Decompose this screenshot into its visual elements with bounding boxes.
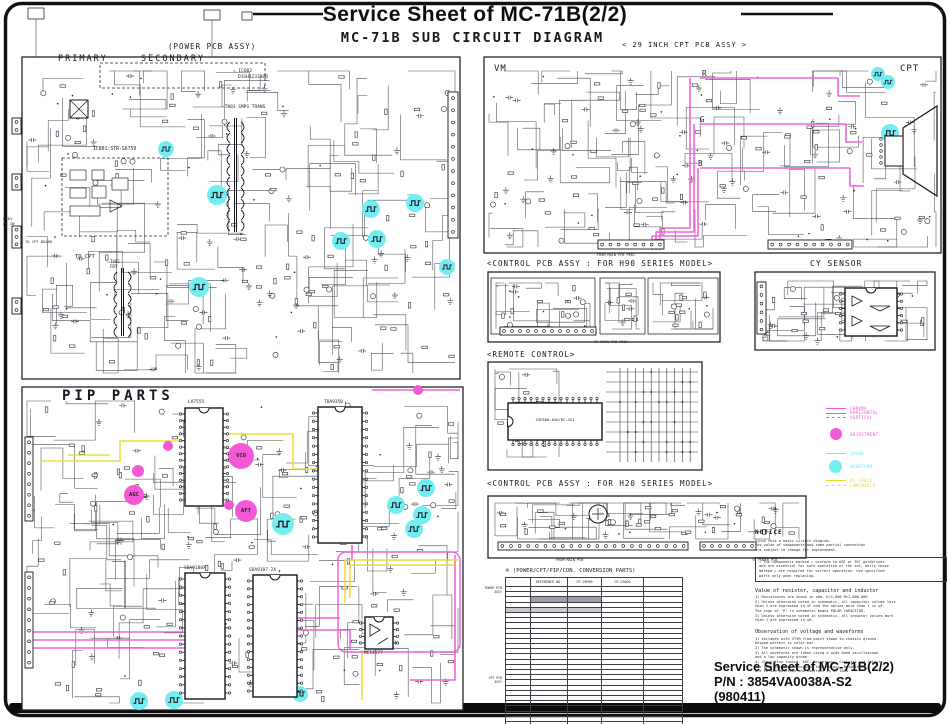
- vco-adjust-label: VCO: [232, 453, 250, 459]
- waveform-icon: [207, 185, 227, 205]
- ic802-label: ⚠ IC802: [233, 69, 252, 74]
- adjustment-icon: [413, 385, 423, 395]
- conv-col-0: [506, 578, 531, 587]
- waveform-icon: [417, 479, 435, 497]
- primary-label: PRIMARY: [58, 55, 108, 65]
- legend-line-vertical: [826, 417, 846, 418]
- connector: [598, 240, 664, 249]
- ic-chip: [247, 575, 302, 697]
- connector: [25, 437, 33, 521]
- notice-value-title: Value of resistor, capacitor and inducto…: [755, 588, 947, 595]
- mc14577-label: MC14577: [364, 651, 383, 656]
- channel-g-label: G: [700, 116, 706, 124]
- legend-adjustment-icon: [830, 428, 842, 440]
- legend-line-dc-cable: [826, 480, 846, 481]
- legend-line-chroma: [826, 408, 846, 409]
- tda9350-label: TDA9350: [324, 400, 343, 405]
- ic-chip: [359, 617, 398, 649]
- la7555-label: LA7555: [188, 400, 204, 405]
- sda9187-label: SDA9187-2X: [249, 568, 276, 573]
- vm-label: VM: [494, 64, 507, 74]
- footer-title: Service Sheet of MC-71B(2/2): [714, 659, 894, 674]
- connector: [12, 226, 21, 248]
- h90-to-main-label: TO MAIN PCB P601: [594, 341, 628, 345]
- connector: [498, 542, 688, 550]
- legend-label-vertical: VERTICAL: [850, 415, 873, 420]
- legend-line-horizontal: [826, 413, 846, 414]
- legend-waveform-icon: [829, 460, 842, 473]
- page-subtitle: MC-71B SUB CIRCUIT DIAGRAM: [300, 31, 645, 46]
- legend-label-adjustment: ADJUSTMENT: [850, 432, 878, 437]
- to-cpt-board-label: TO CPT BOARD: [25, 240, 52, 244]
- cy-sensor-label: CY SENSOR: [810, 260, 862, 269]
- legend-label-sound: SOUND: [850, 451, 864, 456]
- waveform-icon: [362, 200, 380, 218]
- waveform-icon: [881, 75, 895, 89]
- adjustment-icon: [132, 465, 144, 477]
- waveform-icon: [332, 232, 350, 250]
- waveform-icon: [368, 230, 386, 248]
- adjustment-icon: [224, 500, 234, 510]
- adjustment-icon: [163, 441, 173, 451]
- waveform-icon: [130, 692, 148, 710]
- notice-caution-box: ⚠ The components marked ⚠ conform to ASE…: [755, 557, 947, 582]
- waveform-icon: [405, 520, 423, 538]
- conversion-table: REFERENCE NO. CP-29H05 CP-29Q05: [505, 577, 683, 724]
- conv-group-power: POWER PCB ASSY: [481, 586, 502, 594]
- notice-block: NOTICE Since this a basic circuit diagra…: [755, 529, 947, 674]
- legend-label-waveform: WAVEFORM: [850, 464, 873, 469]
- footer-part-number: P/N : 3854VA0038A-S2: [714, 674, 852, 689]
- conversion-table-title: ※ (POWER/CPT/PIP/CON. CONVERSION PARTS): [505, 568, 635, 574]
- ic-chip: [179, 573, 230, 699]
- waveform-icon: [158, 141, 174, 157]
- connector: [12, 298, 21, 314]
- connector: [12, 174, 21, 190]
- fbt-label: FBT: [110, 265, 117, 269]
- connector: [25, 572, 33, 668]
- waveform-icon: [272, 513, 294, 535]
- legend-line-luminance: [826, 485, 846, 486]
- cpt-from-main-label: FROM MAIN PCB P601: [597, 254, 635, 258]
- sda9188x-label: SDA9188X: [184, 566, 206, 571]
- notice-intro-line: are subject to change for improvement.: [755, 548, 947, 553]
- h20-from-main-label: FROM MAIN PCB: [556, 559, 583, 563]
- page-title: Service Sheet of MC-71B(2/2): [0, 3, 950, 27]
- waveform-icon: [189, 277, 209, 297]
- cpt-label: CPT: [900, 64, 919, 74]
- t803-label: ⚠T803 SMPS TRANS: [222, 105, 265, 110]
- notice-obs-title: Observation of voltage and waveforms: [755, 629, 947, 636]
- ic-chip: [312, 407, 367, 543]
- conv-col-3: CP-29Q05: [601, 578, 643, 587]
- waveform-icon: [406, 194, 424, 212]
- connector: [12, 118, 21, 134]
- ic801-label: IC801:STR-S6759: [93, 147, 136, 152]
- h90-label: <CONTROL PCB ASSY : FOR H90 SERIES MODEL…: [487, 260, 713, 268]
- ac-in-label: AC IN: [3, 222, 14, 226]
- connector: [757, 282, 766, 334]
- notice-value-line: than 1 are expressed in uH.: [755, 618, 947, 623]
- pip-parts-label: PIP PARTS: [62, 389, 174, 405]
- channel-b-label: B: [698, 160, 704, 168]
- connector: [768, 240, 852, 249]
- remote-ic-label: S3F880-05A/RC-2S1: [512, 418, 598, 422]
- connector: [448, 92, 458, 238]
- remote-control-label: <REMOTE CONTROL>: [487, 351, 575, 359]
- footer-date: (980411): [714, 689, 765, 704]
- conv-col-1: REFERENCE NO.: [531, 578, 568, 587]
- channel-r-label: R: [702, 70, 708, 78]
- waveform-icon: [439, 259, 455, 275]
- conv-col-2: CP-29H05: [568, 578, 602, 587]
- aft-adjust-label: AFT: [237, 508, 255, 514]
- legend-label-luminance: LUMINANCE: [850, 483, 875, 488]
- service-sheet: Service Sheet of MC-71B(2/2) MC-71B SUB …: [0, 0, 950, 724]
- power-assy-label: (POWER PCB ASSY): [168, 43, 256, 51]
- conv-col-4: [644, 578, 683, 587]
- connector: [500, 327, 596, 335]
- legend-line-sound: [826, 453, 846, 454]
- agc-adjust-label: AGC: [125, 492, 143, 498]
- notice-caution-line: parts only when replacing.: [759, 574, 943, 579]
- secondary-label: SECONDARY: [141, 55, 205, 65]
- conv-group-cpt: CPT PCB ASSY: [481, 676, 502, 684]
- connector: [700, 542, 756, 550]
- cpt-assy-label: < 29 INCH CPT PCB ASSY >: [622, 42, 747, 50]
- ic802-part-label: D1SH123200B: [238, 75, 268, 80]
- ic-chip: [839, 288, 902, 336]
- notice-title: NOTICE: [755, 529, 947, 537]
- waveform-icon: [387, 496, 405, 514]
- to-cpt-label: TO CPT: [75, 254, 95, 260]
- h20-label: <CONTROL PCB ASSY : FOR H20 SERIES MODEL…: [487, 480, 713, 488]
- ic-chip: [179, 408, 228, 506]
